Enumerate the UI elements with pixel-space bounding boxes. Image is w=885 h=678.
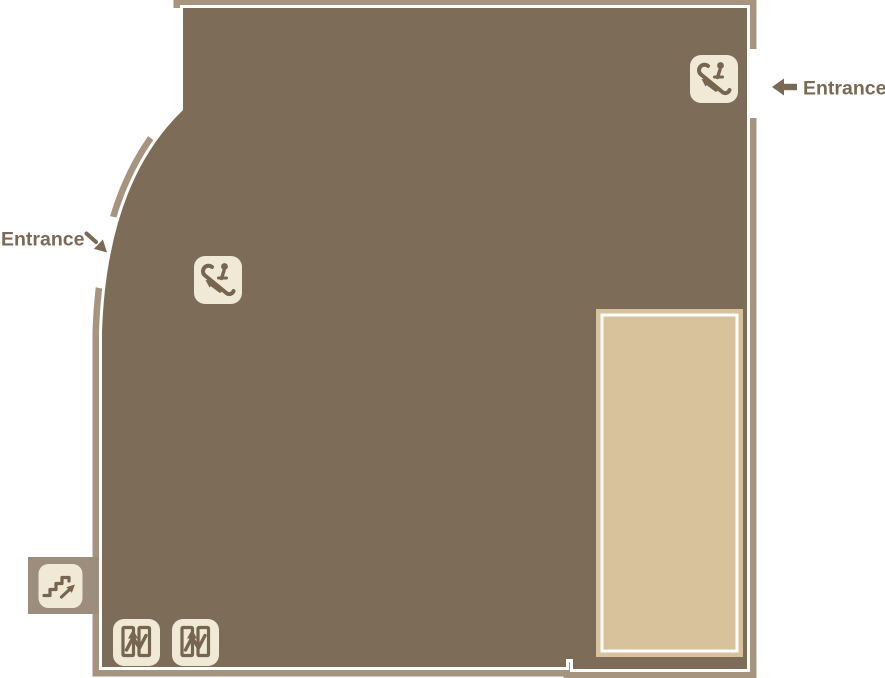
entrance-text-right: Entrance [803, 78, 885, 100]
escalator-icon [690, 55, 738, 103]
entrance-text-left: Entrance [1, 229, 85, 251]
left-arrow-icon [772, 79, 797, 96]
highlight-area [596, 309, 743, 657]
icon-tile [690, 55, 738, 103]
elevator-icon [113, 619, 160, 666]
escalator-icon [194, 256, 242, 304]
icon-tile [194, 256, 242, 304]
floor-map: Entrance Entrance [0, 0, 885, 678]
icon-tile [39, 564, 83, 608]
elevator-icon [172, 619, 219, 666]
stairs-icon [39, 564, 83, 608]
entrance-label-right: Entrance [772, 78, 885, 100]
entrance-label-left: Entrance [1, 229, 107, 253]
